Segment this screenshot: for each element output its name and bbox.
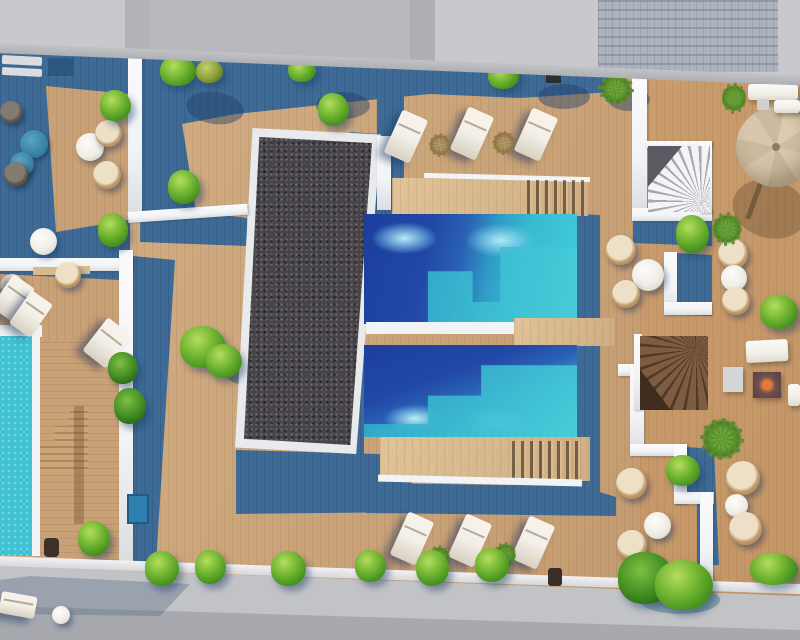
right-wall-h2	[664, 302, 712, 315]
stair-core-shadow	[640, 336, 708, 410]
bush	[475, 548, 509, 582]
potted-palm	[492, 131, 516, 155]
spiral-staircase-lower	[640, 336, 708, 410]
lounge-sofa	[788, 384, 800, 406]
bush	[100, 90, 131, 121]
bush	[145, 551, 179, 586]
bush-shadow	[538, 84, 590, 109]
glass-building	[598, 0, 778, 72]
wicker-chair	[729, 512, 762, 545]
round-table	[52, 606, 70, 624]
left-pool-coping-right	[32, 336, 40, 556]
pool-divider-deck	[514, 318, 614, 346]
palm-plant	[712, 212, 742, 246]
lounge-sofa	[745, 339, 788, 363]
wicker-chair	[4, 162, 28, 186]
lower-pool	[364, 345, 577, 437]
bush	[195, 550, 226, 584]
bush	[98, 213, 128, 247]
wicker-chair	[95, 120, 122, 147]
wicker-chair	[0, 101, 22, 123]
bush	[355, 550, 386, 582]
right-wall-v1	[632, 68, 647, 216]
bush	[760, 295, 798, 329]
fire-pit	[753, 372, 781, 398]
roof-sofa	[774, 100, 800, 113]
lounge-table-gray	[723, 367, 743, 392]
palm-plant	[722, 82, 746, 114]
bush	[196, 60, 223, 83]
bush	[271, 551, 306, 586]
dark-chair	[44, 538, 59, 557]
bush	[78, 521, 110, 556]
wicker-chair	[606, 235, 636, 265]
parasol-finial	[772, 143, 780, 151]
wicker-chair	[55, 262, 81, 288]
bush	[676, 215, 709, 253]
side-table-gray	[757, 99, 769, 110]
grill-box	[548, 568, 562, 586]
bush	[318, 93, 349, 126]
bush	[416, 550, 449, 586]
wicker-chair	[722, 287, 750, 315]
shade-recess	[48, 58, 74, 76]
wicker-chair	[612, 280, 640, 308]
spiral-staircase-upper	[648, 146, 710, 212]
wicker-chair	[726, 461, 760, 495]
round-table	[30, 228, 57, 255]
pool-header-louvers	[527, 180, 589, 216]
gravel-bed	[244, 137, 372, 445]
bush	[168, 170, 200, 204]
bush-cluster	[206, 344, 242, 378]
upper-pool	[364, 214, 577, 324]
bush	[750, 553, 798, 585]
stair-core-shadow	[648, 146, 710, 212]
roof-sofa	[748, 84, 798, 100]
bush	[666, 455, 700, 486]
pool-footer-louvers	[512, 441, 580, 481]
spa-box	[127, 494, 149, 524]
potted-palm	[429, 133, 451, 157]
pool-divider-edge	[366, 322, 516, 334]
wall-vine	[114, 388, 146, 424]
wicker-chair	[616, 468, 647, 499]
terrace-wall-v1	[128, 46, 142, 218]
tree	[655, 560, 713, 610]
wall-vine	[108, 352, 138, 384]
palm-tree	[700, 418, 744, 460]
round-table	[644, 512, 671, 539]
deck-bench-strip	[74, 406, 84, 524]
wicker-chair	[93, 161, 121, 189]
architectural-render	[0, 0, 800, 640]
lower-pool-shallow-zone	[364, 345, 577, 437]
left-pool	[0, 336, 32, 556]
upper-pool-shallow-zone	[364, 214, 577, 324]
